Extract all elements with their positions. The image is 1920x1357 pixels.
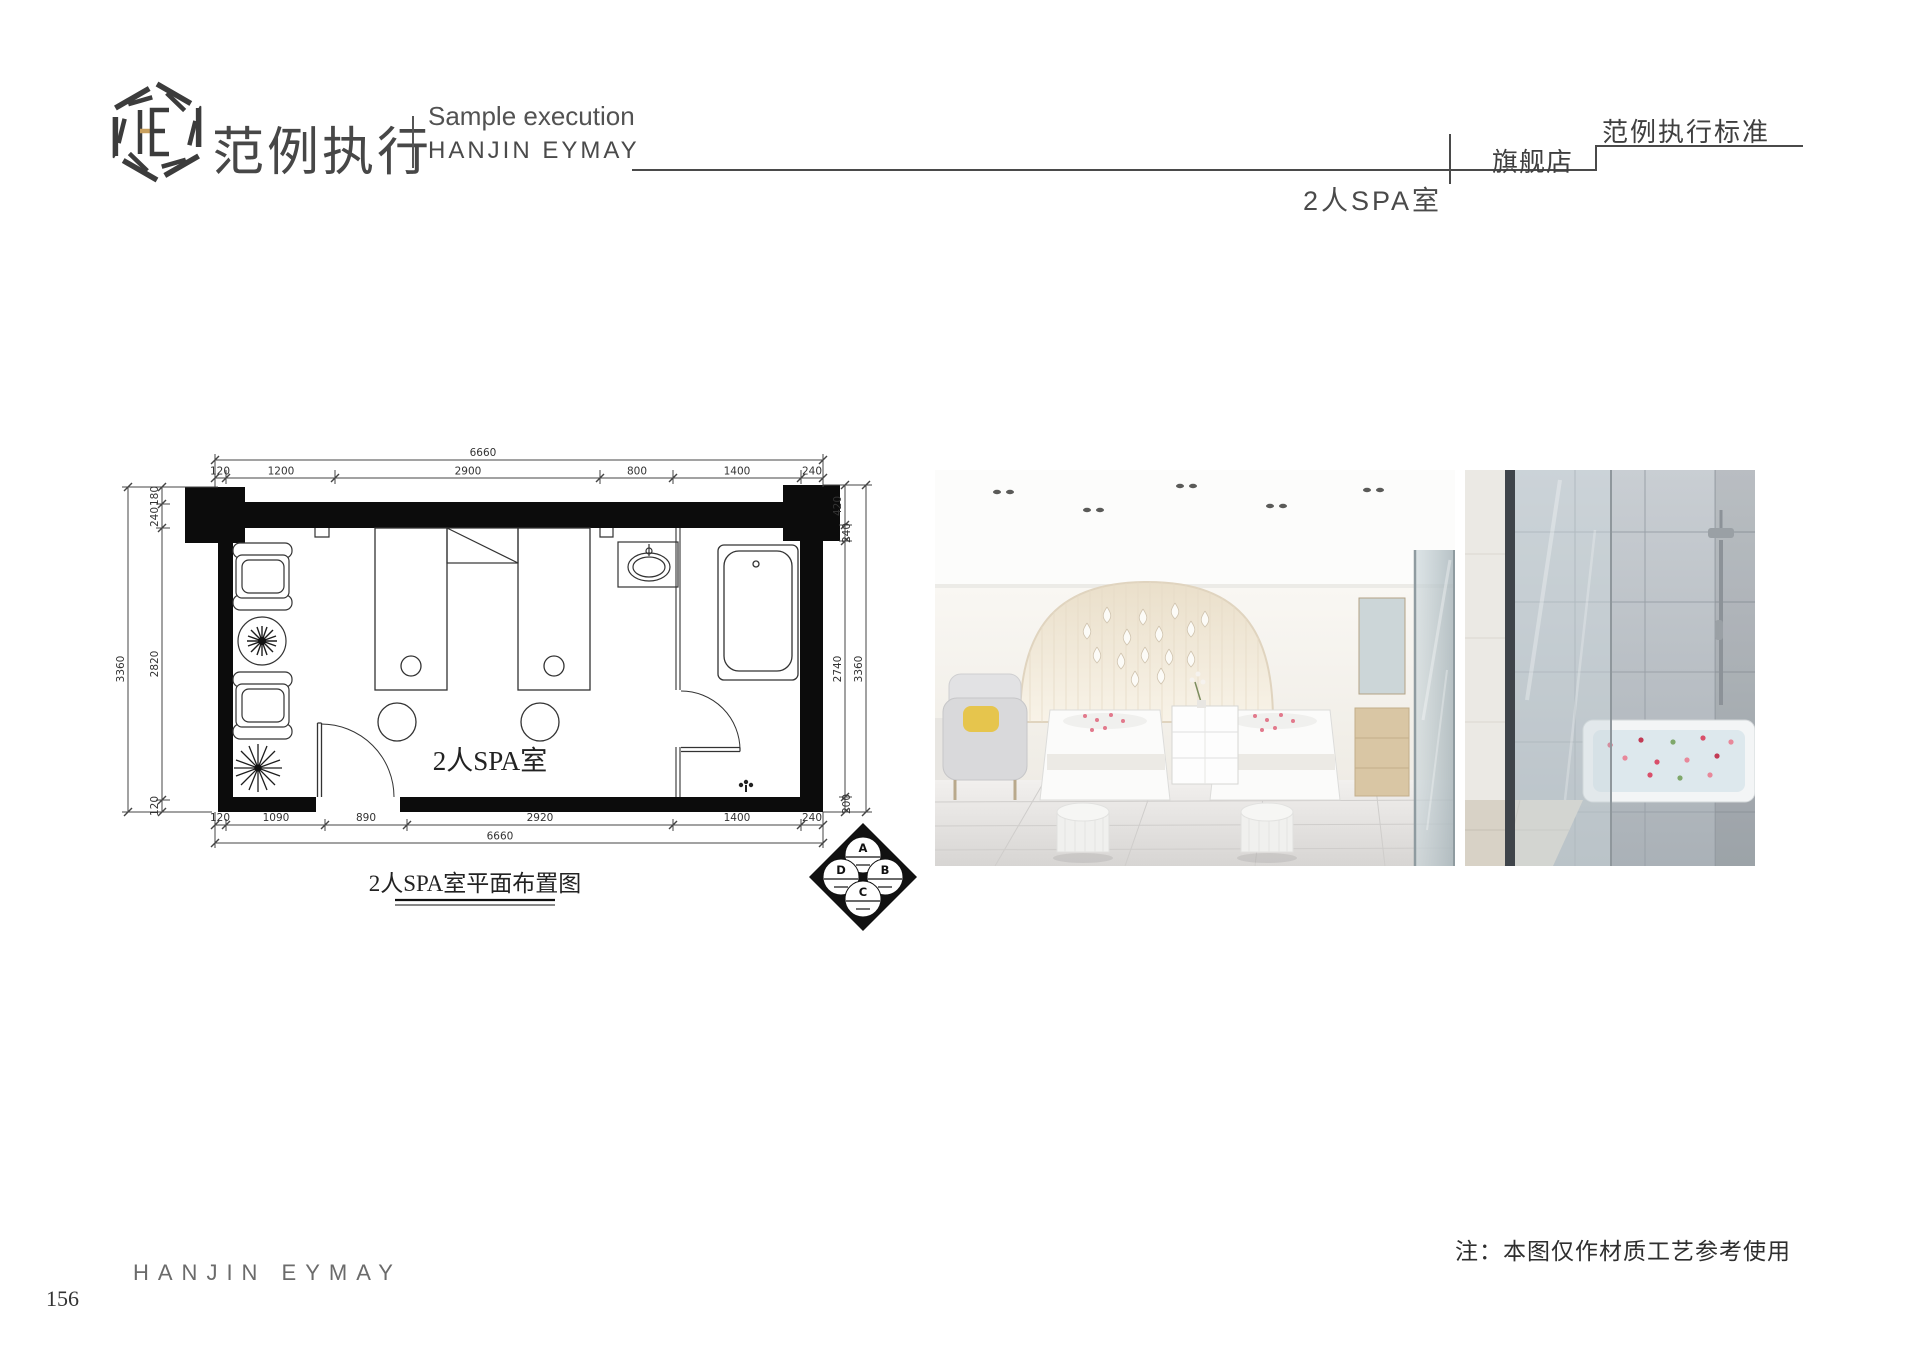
vanity-mirror (1359, 598, 1405, 694)
floor-plan: 2人SPA室 (100, 370, 980, 950)
plant-table (238, 617, 286, 665)
elevation-letter-d: D (836, 863, 846, 877)
standard-label: 范例执行标准 (1602, 112, 1770, 149)
svg-text:240: 240 (841, 523, 853, 543)
svg-text:240: 240 (149, 507, 161, 527)
plan-room-label: 2人SPA室 (433, 746, 548, 776)
svg-text:120: 120 (210, 466, 230, 478)
page-number: 156 (46, 1286, 79, 1312)
svg-text:6660: 6660 (487, 831, 514, 843)
bathroom-door (681, 691, 740, 752)
logo-monogram (140, 110, 169, 154)
plan-caption: 2人SPA室平面布置图 (369, 871, 582, 905)
bathtub (718, 545, 798, 680)
store-type-label: 旗舰店 (1492, 142, 1573, 179)
armchair-1 (233, 543, 292, 610)
svg-text:6660: 6660 (470, 447, 497, 459)
svg-text:1200: 1200 (268, 466, 295, 478)
stool-2 (521, 703, 559, 741)
drain-glyph (739, 780, 753, 792)
glass-wall (1415, 550, 1455, 866)
svg-text:2900: 2900 (455, 466, 482, 478)
svg-text:1400: 1400 (724, 466, 751, 478)
spa-bed-left (1040, 710, 1170, 800)
elevation-letter-b: B (881, 863, 890, 877)
armchair-2 (233, 672, 292, 739)
step-connector (1595, 145, 1597, 171)
svg-text:2920: 2920 (527, 812, 554, 824)
header-rule (632, 169, 1597, 171)
glass-door (1505, 470, 1611, 866)
svg-text:890: 890 (356, 812, 376, 824)
svg-text:2820: 2820 (149, 651, 161, 678)
svg-text:3360: 3360 (853, 656, 865, 683)
brand-divider (412, 116, 414, 168)
svg-text:800: 800 (627, 466, 647, 478)
page-subject-label: 2人SPA室 (1240, 179, 1442, 218)
svg-text:120: 120 (149, 796, 161, 816)
catalog-page: 范例执行 Sample execution HANJIN EYMAY 范例执行标… (0, 0, 1920, 1357)
svg-text:2740: 2740 (832, 656, 844, 683)
footer-brand: HANJIN EYMAY (133, 1260, 402, 1286)
yellow-pillow (963, 706, 999, 732)
svg-text:240: 240 (802, 812, 822, 824)
rendering-bathroom (1465, 470, 1755, 866)
stool-1 (378, 703, 416, 741)
header-divider-tick (1449, 134, 1451, 184)
svg-text:200: 200 (841, 794, 853, 814)
sink (618, 542, 678, 587)
svg-text:120: 120 (210, 812, 230, 824)
massage-bed-2 (518, 528, 590, 690)
svg-text:3360: 3360 (115, 656, 127, 683)
elevation-letter-a: A (859, 841, 868, 855)
brand-name-cn: 范例执行 (212, 110, 432, 185)
company-logo-icon (105, 72, 209, 194)
svg-text:2人SPA室平面布置图: 2人SPA室平面布置图 (369, 871, 582, 896)
floor-plant (234, 744, 282, 792)
svg-text:1400: 1400 (724, 812, 751, 824)
svg-text:1090: 1090 (263, 812, 290, 824)
svg-text:420: 420 (832, 496, 844, 516)
between-beds-cabinet (447, 528, 518, 563)
elevation-marker: A D B C (809, 823, 917, 931)
rendering-spa-room (935, 470, 1455, 866)
svg-text:240: 240 (802, 466, 822, 478)
brand-name-en: HANJIN EYMAY (428, 137, 640, 165)
massage-bed-1 (375, 528, 447, 690)
ceiling (935, 470, 1455, 590)
material-note: 注：本图仅作材质工艺参考使用 (1455, 1232, 1791, 1266)
brand-tagline-en: Sample execution (428, 101, 635, 132)
elevation-letter-c: C (859, 885, 867, 899)
svg-text:180: 180 (149, 486, 161, 506)
